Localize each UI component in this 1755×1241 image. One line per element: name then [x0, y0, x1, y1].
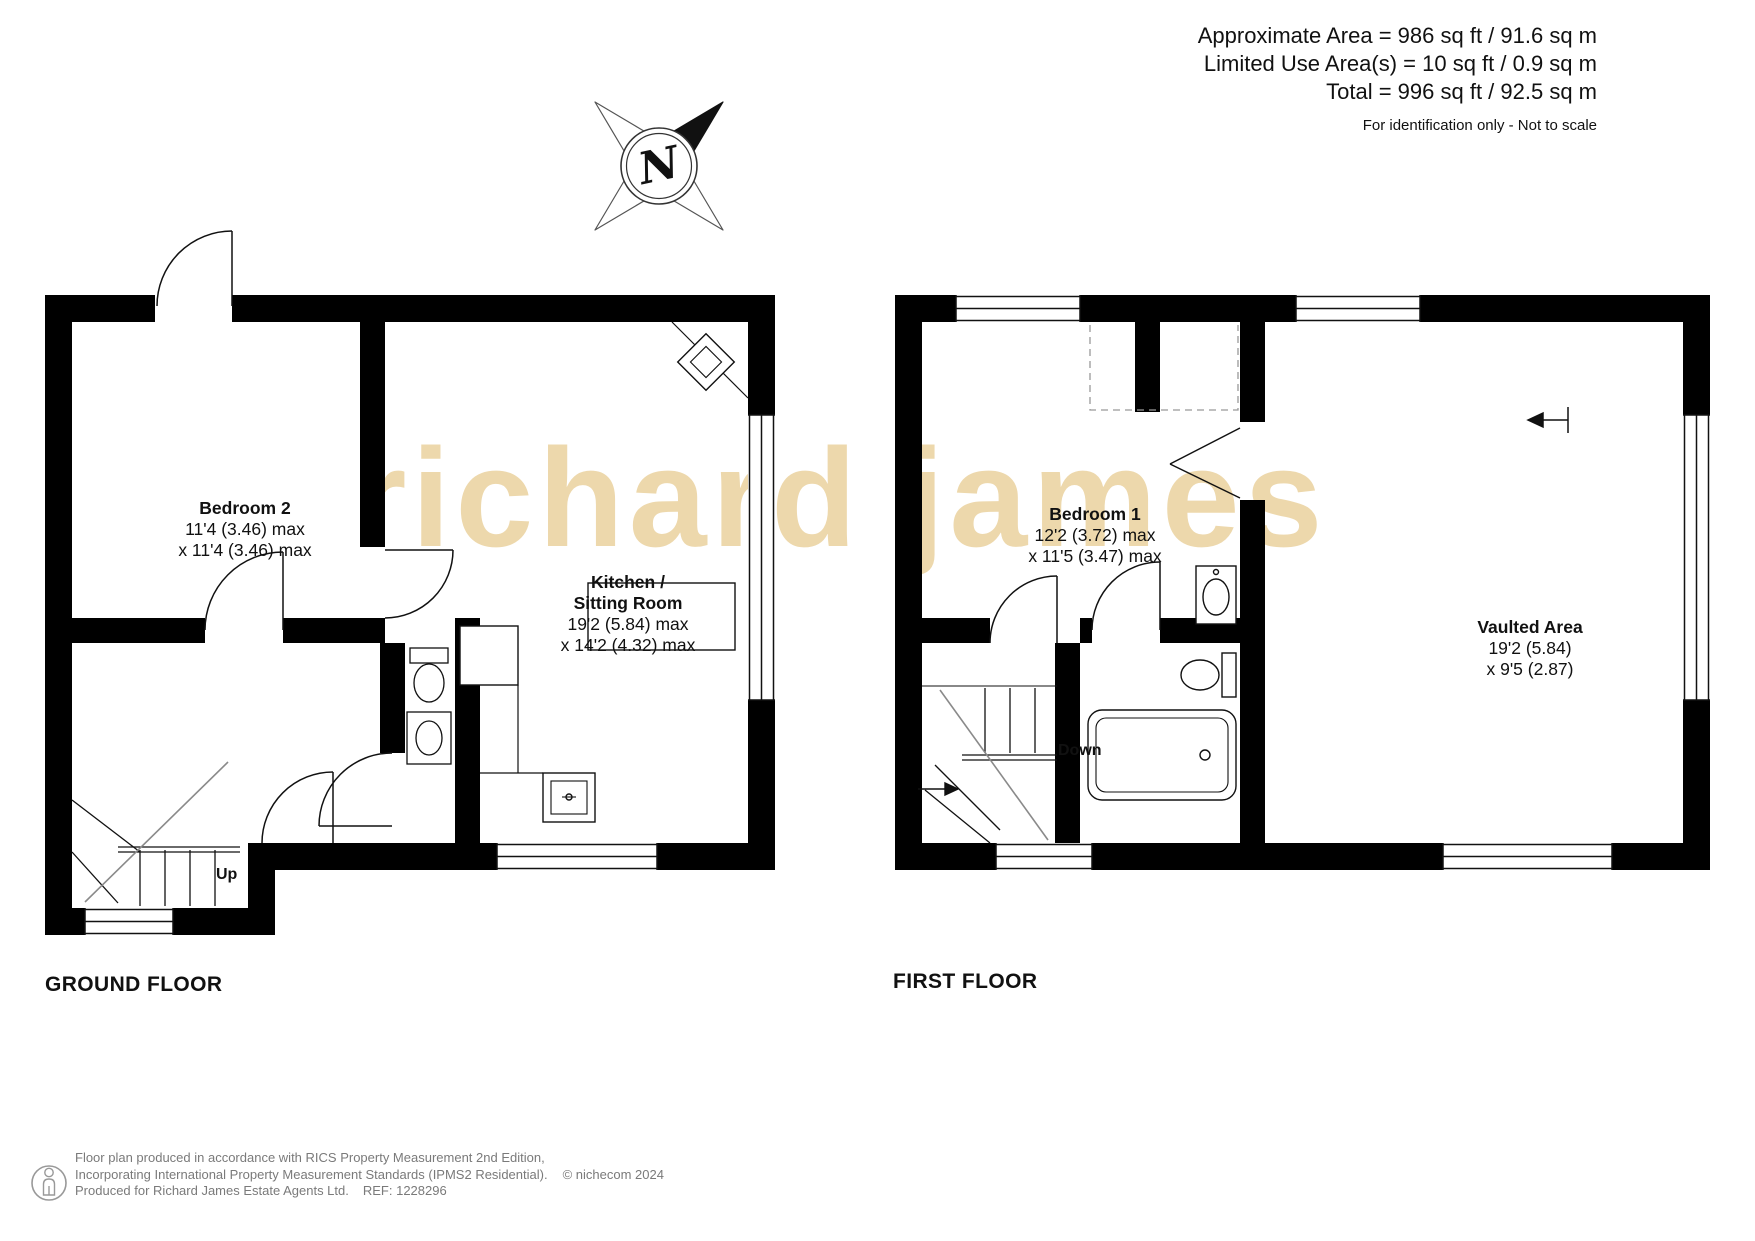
wc-door-arc — [319, 753, 392, 826]
stair-direction-arrow — [918, 783, 958, 795]
window-right — [748, 415, 775, 700]
window-kitchen-bottom — [497, 843, 657, 870]
room-dim: x 9'5 (2.87) — [1477, 659, 1582, 680]
copyright: © nichecom 2024 — [563, 1167, 664, 1182]
footer-line2: Incorporating International Property Mea… — [75, 1167, 664, 1184]
room-name: Sitting Room — [561, 593, 696, 614]
kitchen-door-arc — [385, 550, 453, 618]
room-dim: 19'2 (5.84) — [1477, 638, 1582, 659]
corner-cabinet — [678, 334, 735, 391]
bedroom2-door-arc — [205, 552, 283, 630]
bathroom-fixtures — [1088, 566, 1236, 800]
stair-rail-diagonal — [85, 762, 228, 902]
stairs-down-label: Down — [1058, 742, 1102, 760]
appliance — [460, 626, 518, 685]
room-dim: x 14'2 (4.32) max — [561, 635, 696, 656]
footer-line1: Floor plan produced in accordance with R… — [75, 1150, 664, 1167]
room-dim: 19'2 (5.84) max — [561, 614, 696, 635]
footer-line2-text: Incorporating International Property Mea… — [75, 1167, 548, 1182]
room-label-kitchen-sitting-room: Kitchen / Sitting Room 19'2 (5.84) max x… — [561, 572, 696, 656]
front-door-arc — [157, 231, 232, 306]
footer-line3-text: Produced for Richard James Estate Agents… — [75, 1183, 349, 1198]
window-top-right — [1296, 295, 1420, 322]
room-name: Bedroom 1 — [1028, 504, 1161, 525]
approximate-area: Approximate Area = 986 sq ft / 91.6 sq m — [1198, 22, 1597, 50]
bathtub — [1088, 710, 1236, 800]
wc-fixtures — [407, 648, 451, 764]
compass-rose: N — [595, 102, 723, 230]
window-top-left — [956, 295, 1080, 322]
first-floor-stairs — [918, 686, 1057, 843]
ground-floor-title: GROUND FLOOR — [45, 973, 222, 997]
window-stairwell-bottom — [85, 908, 173, 935]
first-floor-plan — [895, 295, 1710, 870]
basin — [407, 712, 451, 764]
basin — [1196, 566, 1236, 624]
window-bottom-left — [996, 843, 1092, 870]
toilet — [410, 648, 448, 702]
stair-rail-diagonal — [940, 690, 1048, 840]
floorplan-page: richard james N — [0, 0, 1755, 1241]
stairs-up-label: Up — [216, 866, 237, 884]
bedroom1-open-door — [1170, 428, 1240, 498]
person-icon — [32, 1166, 66, 1200]
ground-floor-stairs — [72, 762, 240, 906]
total-area: Total = 996 sq ft / 92.5 sq m — [1198, 78, 1597, 106]
limited-use-area: Limited Use Area(s) = 10 sq ft / 0.9 sq … — [1198, 50, 1597, 78]
room-dim: x 11'4 (3.46) max — [178, 540, 311, 561]
toilet — [1181, 653, 1236, 697]
room-label-vaulted-area: Vaulted Area 19'2 (5.84) x 9'5 (2.87) — [1477, 617, 1582, 680]
room-label-bedroom1: Bedroom 1 12'2 (3.72) max x 11'5 (3.47) … — [1028, 504, 1161, 567]
room-name: Vaulted Area — [1477, 617, 1582, 638]
room-name: Bedroom 2 — [178, 498, 311, 519]
vaulted-access-arrow — [1528, 407, 1568, 433]
sink-unit — [543, 773, 595, 822]
window-bottom-right — [1443, 843, 1612, 870]
room-dim: 12'2 (3.72) max — [1028, 525, 1161, 546]
landing-door-arc — [990, 576, 1057, 643]
first-floor-walls — [895, 295, 1710, 870]
footer-line3: Produced for Richard James Estate Agents… — [75, 1183, 664, 1200]
area-summary: Approximate Area = 986 sq ft / 91.6 sq m… — [1198, 22, 1597, 140]
bathroom-door-arc — [1092, 562, 1160, 630]
scale-disclaimer: For identification only - Not to scale — [1198, 112, 1597, 140]
reference-number: REF: 1228296 — [363, 1183, 447, 1198]
room-name: Kitchen / — [561, 572, 696, 593]
hall-door-arc — [262, 772, 333, 843]
room-label-bedroom2: Bedroom 2 11'4 (3.46) max x 11'4 (3.46) … — [178, 498, 311, 561]
restricted-height-dashed-line — [1090, 325, 1238, 410]
room-dim: x 11'5 (3.47) max — [1028, 546, 1161, 567]
window-right — [1683, 415, 1710, 700]
room-dim: 11'4 (3.46) max — [178, 519, 311, 540]
first-floor-title: FIRST FLOOR — [893, 970, 1037, 994]
footer: Floor plan produced in accordance with R… — [75, 1150, 664, 1200]
